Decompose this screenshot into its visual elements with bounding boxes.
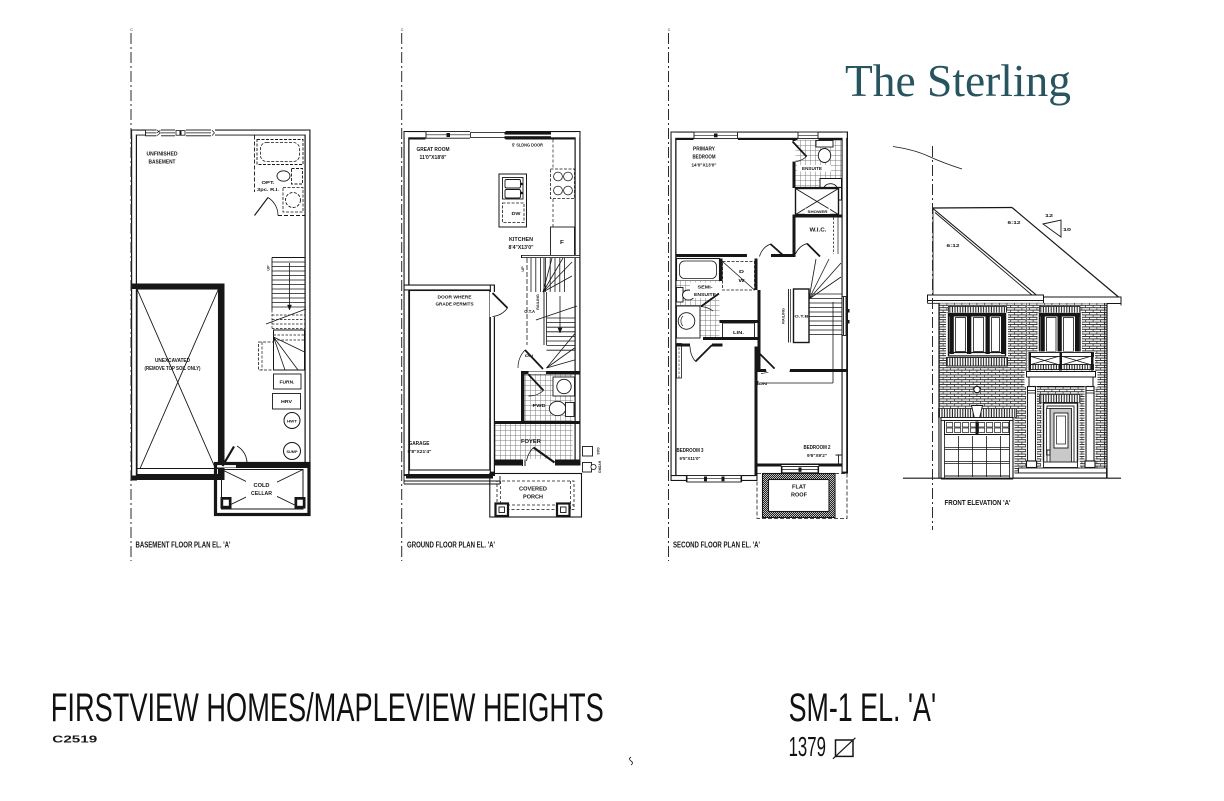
svg-text:COVERED: COVERED	[519, 487, 547, 493]
svg-text:PRIMARY: PRIMARY	[693, 147, 716, 153]
svg-text:FURN.: FURN.	[280, 380, 295, 385]
svg-text:RAILING: RAILING	[536, 294, 540, 310]
svg-text:HWT: HWT	[287, 419, 298, 423]
svg-text:1379: 1379	[789, 731, 826, 762]
svg-text:SUMP: SUMP	[287, 450, 299, 454]
svg-text:10: 10	[1063, 227, 1072, 232]
svg-text:12: 12	[1045, 213, 1054, 218]
svg-text:UNEXCAVATED: UNEXCAVATED	[155, 358, 190, 364]
svg-text:OPT.: OPT.	[262, 180, 275, 186]
svg-text:8'4"X13'0": 8'4"X13'0"	[509, 245, 535, 251]
svg-text:PWD: PWD	[533, 403, 546, 408]
svg-text:SHOWER: SHOWER	[808, 210, 828, 214]
svg-text:GREAT ROOM: GREAT ROOM	[417, 147, 450, 153]
svg-text:9'6"X9'2": 9'6"X9'2"	[807, 453, 827, 459]
svg-text:ENSUITE: ENSUITE	[802, 166, 822, 171]
svg-text:FIRSTVIEW HOMES/MAPLEVIEW HEIG: FIRSTVIEW HOMES/MAPLEVIEW HEIGHTS	[51, 686, 604, 730]
svg-text:FOYER: FOYER	[521, 439, 541, 445]
svg-text:DW: DW	[512, 211, 521, 216]
svg-text:UP: UP	[267, 265, 271, 271]
svg-text:BASEMENT FLOOR PLAN EL. 'A': BASEMENT FLOOR PLAN EL. 'A'	[136, 541, 231, 550]
svg-text:KITCHEN: KITCHEN	[509, 237, 533, 243]
svg-text:PORCH: PORCH	[523, 495, 543, 501]
svg-text:5' SLDNG DOOR: 5' SLDNG DOOR	[512, 143, 544, 148]
svg-text:O.T.A: O.T.A	[524, 309, 535, 314]
svg-text:9'8"X21'4": 9'8"X21'4"	[408, 449, 432, 455]
svg-text:C2519: C2519	[52, 734, 97, 746]
svg-text:O.T.B: O.T.B	[795, 314, 809, 319]
svg-text:COLD: COLD	[254, 483, 270, 489]
svg-text:UP: UP	[521, 266, 525, 272]
svg-text:D: D	[739, 269, 744, 274]
svg-text:SEMI-: SEMI-	[698, 285, 714, 290]
svg-text:GROUND FLOOR PLAN EL. 'A': GROUND FLOOR PLAN EL. 'A'	[407, 541, 495, 550]
svg-text:GARAGE: GARAGE	[409, 441, 431, 447]
svg-text:BEDROOM 2: BEDROOM 2	[804, 445, 831, 451]
svg-text:FRONT ELEVATION 'A': FRONT ELEVATION 'A'	[945, 498, 1011, 507]
svg-text:HYDRO: HYDRO	[598, 461, 602, 474]
svg-text:F: F	[560, 240, 564, 246]
svg-text:BASEMENT: BASEMENT	[149, 160, 176, 166]
svg-text:GAS: GAS	[596, 447, 600, 455]
svg-text:14'0"X13'0": 14'0"X13'0"	[692, 163, 717, 169]
svg-text:UNFINISHED: UNFINISHED	[147, 152, 178, 158]
svg-text:CELLAR: CELLAR	[251, 491, 272, 497]
svg-text:(REMOVE TOP SOIL ONLY): (REMOVE TOP SOIL ONLY)	[145, 366, 201, 372]
svg-text:ROOF: ROOF	[791, 493, 807, 499]
svg-text:ENSUITE: ENSUITE	[694, 292, 716, 297]
svg-text:The Sterling: The Sterling	[845, 55, 1071, 106]
svg-text:SM-1 EL. 'A': SM-1 EL. 'A'	[789, 686, 937, 730]
svg-text:RAILING: RAILING	[782, 308, 786, 324]
svg-text:HRV: HRV	[281, 399, 292, 404]
svg-text:6:12: 6:12	[1008, 220, 1021, 226]
svg-text:LIN.: LIN.	[733, 330, 744, 335]
svg-text:BEDROOM: BEDROOM	[693, 155, 716, 161]
svg-text:9'5"X11'0": 9'5"X11'0"	[680, 456, 701, 462]
svg-text:SECOND FLOOR PLAN EL. 'A': SECOND FLOOR PLAN EL. 'A'	[673, 541, 760, 550]
svg-text:FLAT: FLAT	[792, 485, 806, 491]
svg-text:DN: DN	[759, 382, 768, 386]
svg-text:3pc. R.I.: 3pc. R.I.	[257, 187, 279, 193]
svg-text:BEDROOM 3: BEDROOM 3	[677, 448, 704, 454]
svg-text:W.I.C.: W.I.C.	[810, 228, 828, 234]
svg-text:6:12: 6:12	[947, 243, 960, 249]
svg-text:GRADE PERMITS: GRADE PERMITS	[436, 302, 474, 307]
svg-text:DOOR WHERE: DOOR WHERE	[438, 295, 472, 300]
svg-text:11'0"X18'8": 11'0"X18'8"	[420, 155, 448, 161]
